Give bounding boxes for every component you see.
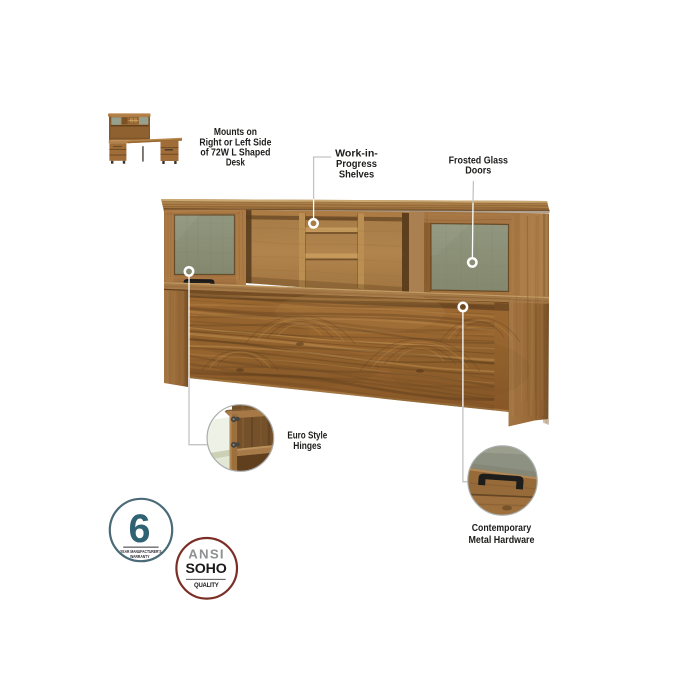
svg-text:Mounts on: Mounts on	[214, 127, 257, 138]
svg-text:Work-in-: Work-in-	[335, 149, 378, 160]
svg-text:Euro Style: Euro Style	[287, 430, 327, 441]
svg-text:Contemporary: Contemporary	[472, 523, 532, 534]
svg-text:Hinges: Hinges	[293, 441, 321, 452]
svg-text:SOHO: SOHO	[185, 561, 226, 577]
svg-text:QUALITY: QUALITY	[194, 583, 219, 589]
svg-text:ANSI: ANSI	[188, 546, 223, 561]
svg-text:WARRANTY: WARRANTY	[130, 554, 149, 559]
svg-text:Desk: Desk	[226, 158, 245, 169]
svg-text:6: 6	[129, 507, 151, 551]
svg-text:Metal Hardware: Metal Hardware	[469, 535, 535, 546]
svg-text:Progress: Progress	[336, 159, 377, 170]
svg-text:Doors: Doors	[465, 166, 491, 177]
svg-text:Shelves: Shelves	[339, 170, 375, 181]
